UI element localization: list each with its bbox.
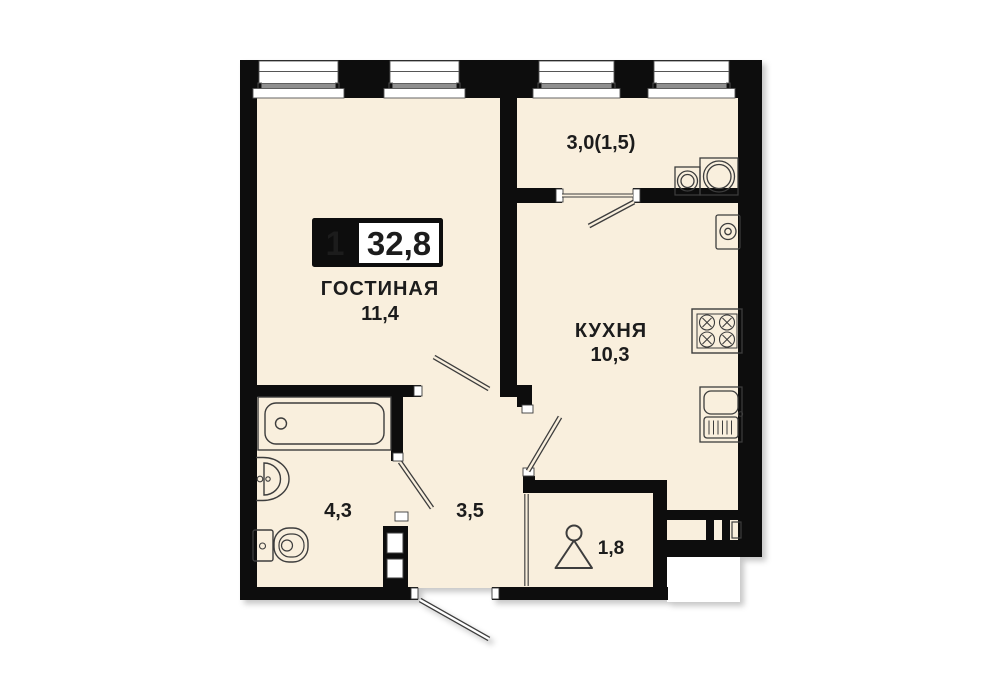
exterior-cutout	[667, 557, 740, 602]
floor-plan-page: 1 32,8 3,0(1,5) ГОСТИНАЯ 11,4 КУХНЯ 10,3…	[0, 0, 1006, 700]
duct-icon	[722, 518, 730, 542]
wall-segment	[653, 540, 762, 557]
wall-segment	[500, 98, 517, 397]
jamb-cap	[556, 189, 563, 202]
wall-segment	[391, 385, 403, 461]
jamb-cap	[522, 405, 533, 413]
jamb-cap	[633, 189, 640, 202]
living-room-name-label: ГОСТИНАЯ	[321, 278, 439, 300]
window-icon	[648, 61, 735, 98]
floor-plan: 1 32,8 3,0(1,5) ГОСТИНАЯ 11,4 КУХНЯ 10,3…	[240, 60, 762, 639]
window-icon	[533, 61, 620, 98]
duct-icon	[706, 518, 714, 542]
area-badge: 1 32,8	[312, 218, 443, 267]
wall-segment	[517, 385, 532, 407]
duct-icon	[667, 510, 762, 520]
wall-segment	[517, 188, 562, 203]
hallway-area-label: 3,5	[456, 500, 484, 522]
wall-segment	[523, 480, 667, 493]
kitchen-area-label: 10,3	[591, 344, 630, 366]
bathroom-area-label: 4,3	[324, 500, 352, 522]
jamb-cap	[492, 588, 499, 599]
jamb-cap	[414, 386, 422, 396]
door-swing-icon	[420, 600, 489, 639]
jamb-cap	[411, 588, 418, 599]
kitchen-name-label: КУХНЯ	[575, 320, 647, 342]
wall-segment	[240, 60, 257, 600]
window-icon	[384, 61, 465, 98]
wall-segment	[492, 587, 668, 600]
jamb-cap	[393, 453, 403, 461]
vent-shaft-cell	[387, 559, 403, 578]
window-icon	[253, 61, 344, 98]
floor-plan-canvas: 1 32,8 3,0(1,5) ГОСТИНАЯ 11,4 КУХНЯ 10,3…	[0, 0, 1006, 700]
jamb-cap	[395, 512, 408, 521]
wall-segment	[240, 587, 418, 600]
badge-total-area: 32,8	[367, 225, 431, 262]
vent-shaft-cell	[387, 533, 403, 553]
badge-rooms-count: 1	[326, 225, 345, 263]
wardrobe-area-label: 1,8	[598, 538, 624, 559]
balcony-area-label: 3,0(1,5)	[567, 132, 636, 154]
living-room-area-label: 11,4	[361, 303, 400, 325]
